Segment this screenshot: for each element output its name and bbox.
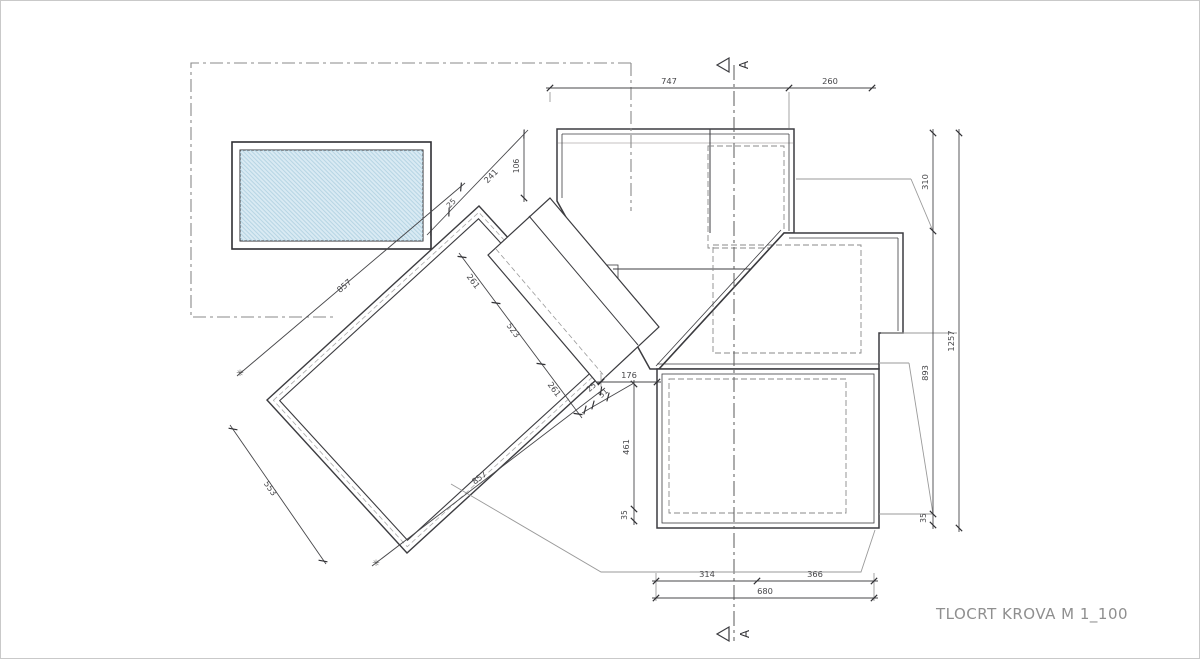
section-arrow-icon — [717, 58, 729, 72]
pool-water-hatch — [240, 150, 423, 241]
dim-bottom: 314 366 680 — [652, 569, 878, 601]
dim-label: 680 — [757, 586, 773, 596]
dim-label: 176 — [621, 370, 637, 380]
dim-label: 310 — [920, 174, 930, 190]
roof-bottom-section — [657, 364, 879, 528]
dim-label: 35 — [620, 510, 629, 520]
drawing-title: TLOCRT KROVA M 1_100 — [935, 605, 1128, 624]
section-arrow-icon — [717, 627, 729, 641]
dim-label: 314 — [699, 569, 715, 579]
dim-label: 261 — [465, 272, 483, 291]
dim-label: 260 — [822, 76, 838, 86]
dim-terrace-left: 553 — [229, 425, 328, 564]
dim-label: 1257 — [946, 330, 956, 351]
drawing-sheet: A A 747 260 310 893 35 — [0, 0, 1200, 659]
asterisk-mark: ✳ — [372, 559, 380, 569]
dim-right: 310 893 35 1257 — [919, 129, 962, 532]
asterisk-mark: ✳ — [236, 369, 244, 379]
dim-label: 461 — [621, 439, 631, 455]
dim-label: 366 — [807, 569, 823, 579]
dim-label: 35 — [919, 513, 928, 523]
dim-left-vertical: 461 35 — [620, 380, 637, 525]
pool — [232, 142, 431, 249]
roof-plan-drawing: A A 747 260 310 893 35 — [1, 1, 1200, 659]
dim-label: 523 — [505, 321, 523, 340]
dim-top: 747 260 — [546, 76, 876, 91]
dim-label: 747 — [661, 76, 677, 86]
dim-label: 553 — [262, 479, 279, 498]
section-label: A — [738, 629, 752, 638]
dim-label: 893 — [920, 365, 930, 381]
dim-label: 261 — [546, 380, 564, 399]
dim-entry-edge: 25 51 — [582, 380, 634, 414]
section-label: A — [737, 60, 751, 69]
dim-label: 106 — [512, 159, 521, 174]
dim-label: 857 — [470, 469, 489, 487]
dim-label: 241 — [482, 167, 500, 185]
